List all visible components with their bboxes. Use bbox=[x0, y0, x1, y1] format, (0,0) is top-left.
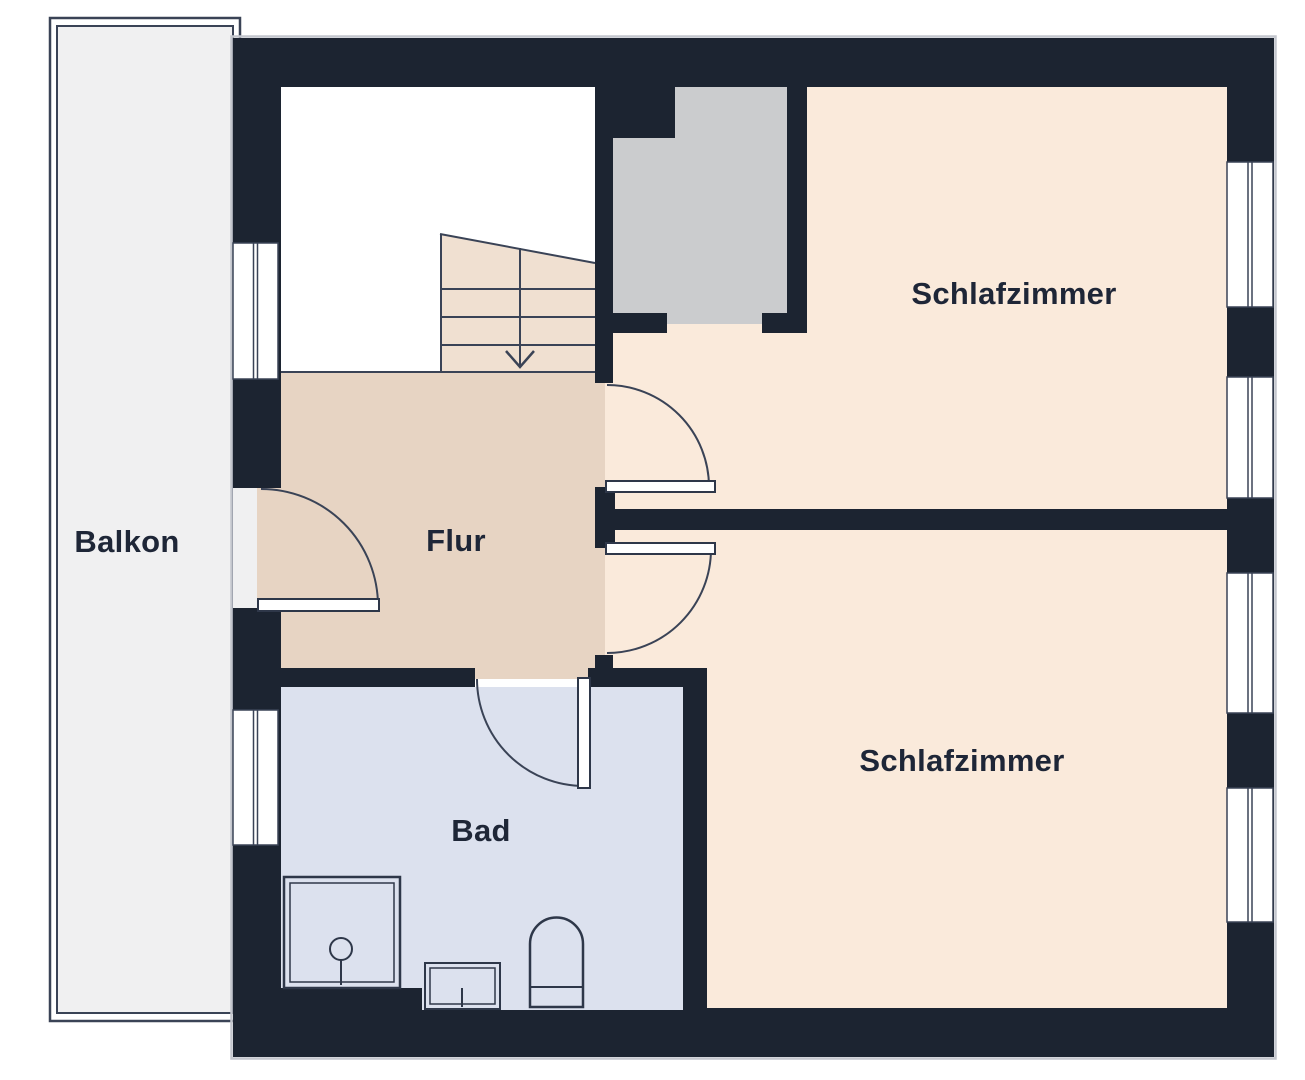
door-leaf bbox=[606, 543, 715, 554]
window-left-upper bbox=[233, 243, 278, 379]
wall-shaft-right bbox=[787, 87, 807, 333]
wall-bottom bbox=[233, 1008, 1274, 1057]
wall-stairroom-shaft bbox=[595, 87, 613, 383]
wall-shaft-notch bbox=[613, 87, 675, 138]
room-label-bad: Bad bbox=[451, 813, 510, 848]
door-leaf bbox=[578, 678, 590, 788]
wall-shaft-stub-right bbox=[762, 313, 807, 333]
room-label-schlafzimmer-2: Schlafzimmer bbox=[859, 743, 1064, 778]
balcony-floor bbox=[57, 26, 233, 1013]
shaft-floor-gap bbox=[667, 313, 762, 324]
door-leaf bbox=[606, 481, 715, 492]
wall-shaft-stub-left bbox=[595, 313, 667, 333]
wall-bedroom-divider bbox=[605, 509, 1227, 530]
window-right-3 bbox=[1227, 573, 1273, 713]
floor-plan-svg: Balkon Flur Bad Schlafzimmer Schlafzimme… bbox=[0, 0, 1305, 1080]
wall-flur-stub bbox=[595, 655, 613, 669]
flur-floor bbox=[281, 373, 605, 668]
wall-bad-right bbox=[683, 668, 707, 1010]
window-right-2 bbox=[1227, 377, 1273, 498]
floors bbox=[233, 87, 1227, 1010]
window-right-4 bbox=[1227, 788, 1273, 922]
room-label-balkon: Balkon bbox=[74, 524, 179, 559]
room-label-flur: Flur bbox=[426, 523, 486, 558]
room-label-schlafzimmer-1: Schlafzimmer bbox=[911, 276, 1116, 311]
shaft-floor-main bbox=[613, 138, 787, 313]
wall-bad-top-left bbox=[278, 668, 475, 687]
flur-door-threshold bbox=[257, 488, 281, 608]
balcony-door-threshold bbox=[233, 488, 257, 608]
wall-top bbox=[233, 38, 1274, 87]
bad-door-threshold bbox=[475, 668, 588, 679]
floorplan-canvas: Balkon Flur Bad Schlafzimmer Schlafzimme… bbox=[0, 0, 1305, 1080]
shaft-floor-upper bbox=[675, 87, 787, 138]
window-right-1 bbox=[1227, 162, 1273, 307]
window-left-lower bbox=[233, 710, 278, 845]
wall-shower-bump bbox=[233, 988, 422, 1010]
door-leaf bbox=[258, 599, 379, 611]
